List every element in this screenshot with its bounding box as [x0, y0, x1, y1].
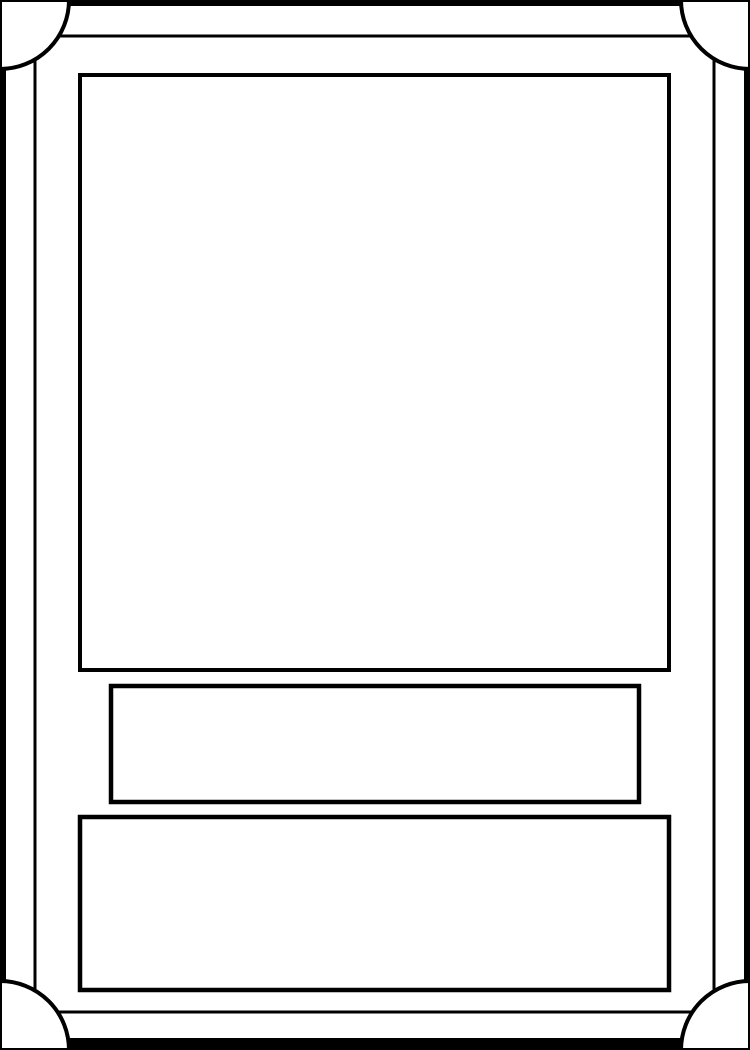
artwork-box — [80, 75, 669, 670]
blank-card-template — [0, 0, 750, 1050]
card-frame-drawing — [0, 0, 750, 1050]
description-box — [80, 817, 669, 990]
title-bar-box — [111, 686, 639, 802]
